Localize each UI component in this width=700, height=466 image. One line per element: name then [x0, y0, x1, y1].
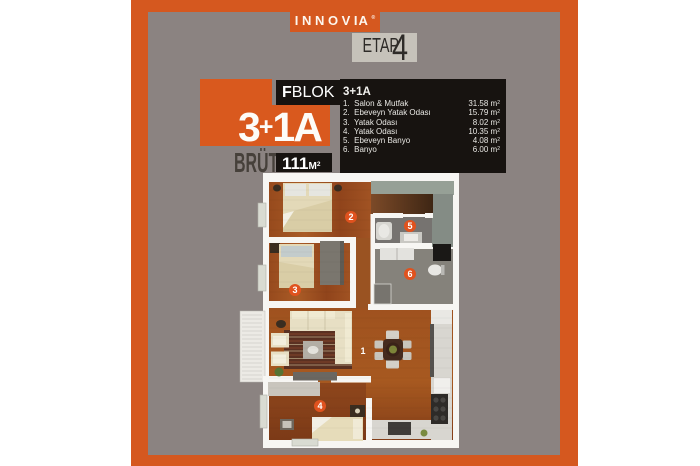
- svg-text:1: 1: [360, 346, 365, 356]
- svg-text:6: 6: [407, 269, 412, 279]
- svg-text:5: 5: [407, 221, 412, 231]
- svg-text:2: 2: [348, 212, 353, 222]
- svg-text:4: 4: [317, 401, 322, 411]
- svg-text:3: 3: [292, 285, 297, 295]
